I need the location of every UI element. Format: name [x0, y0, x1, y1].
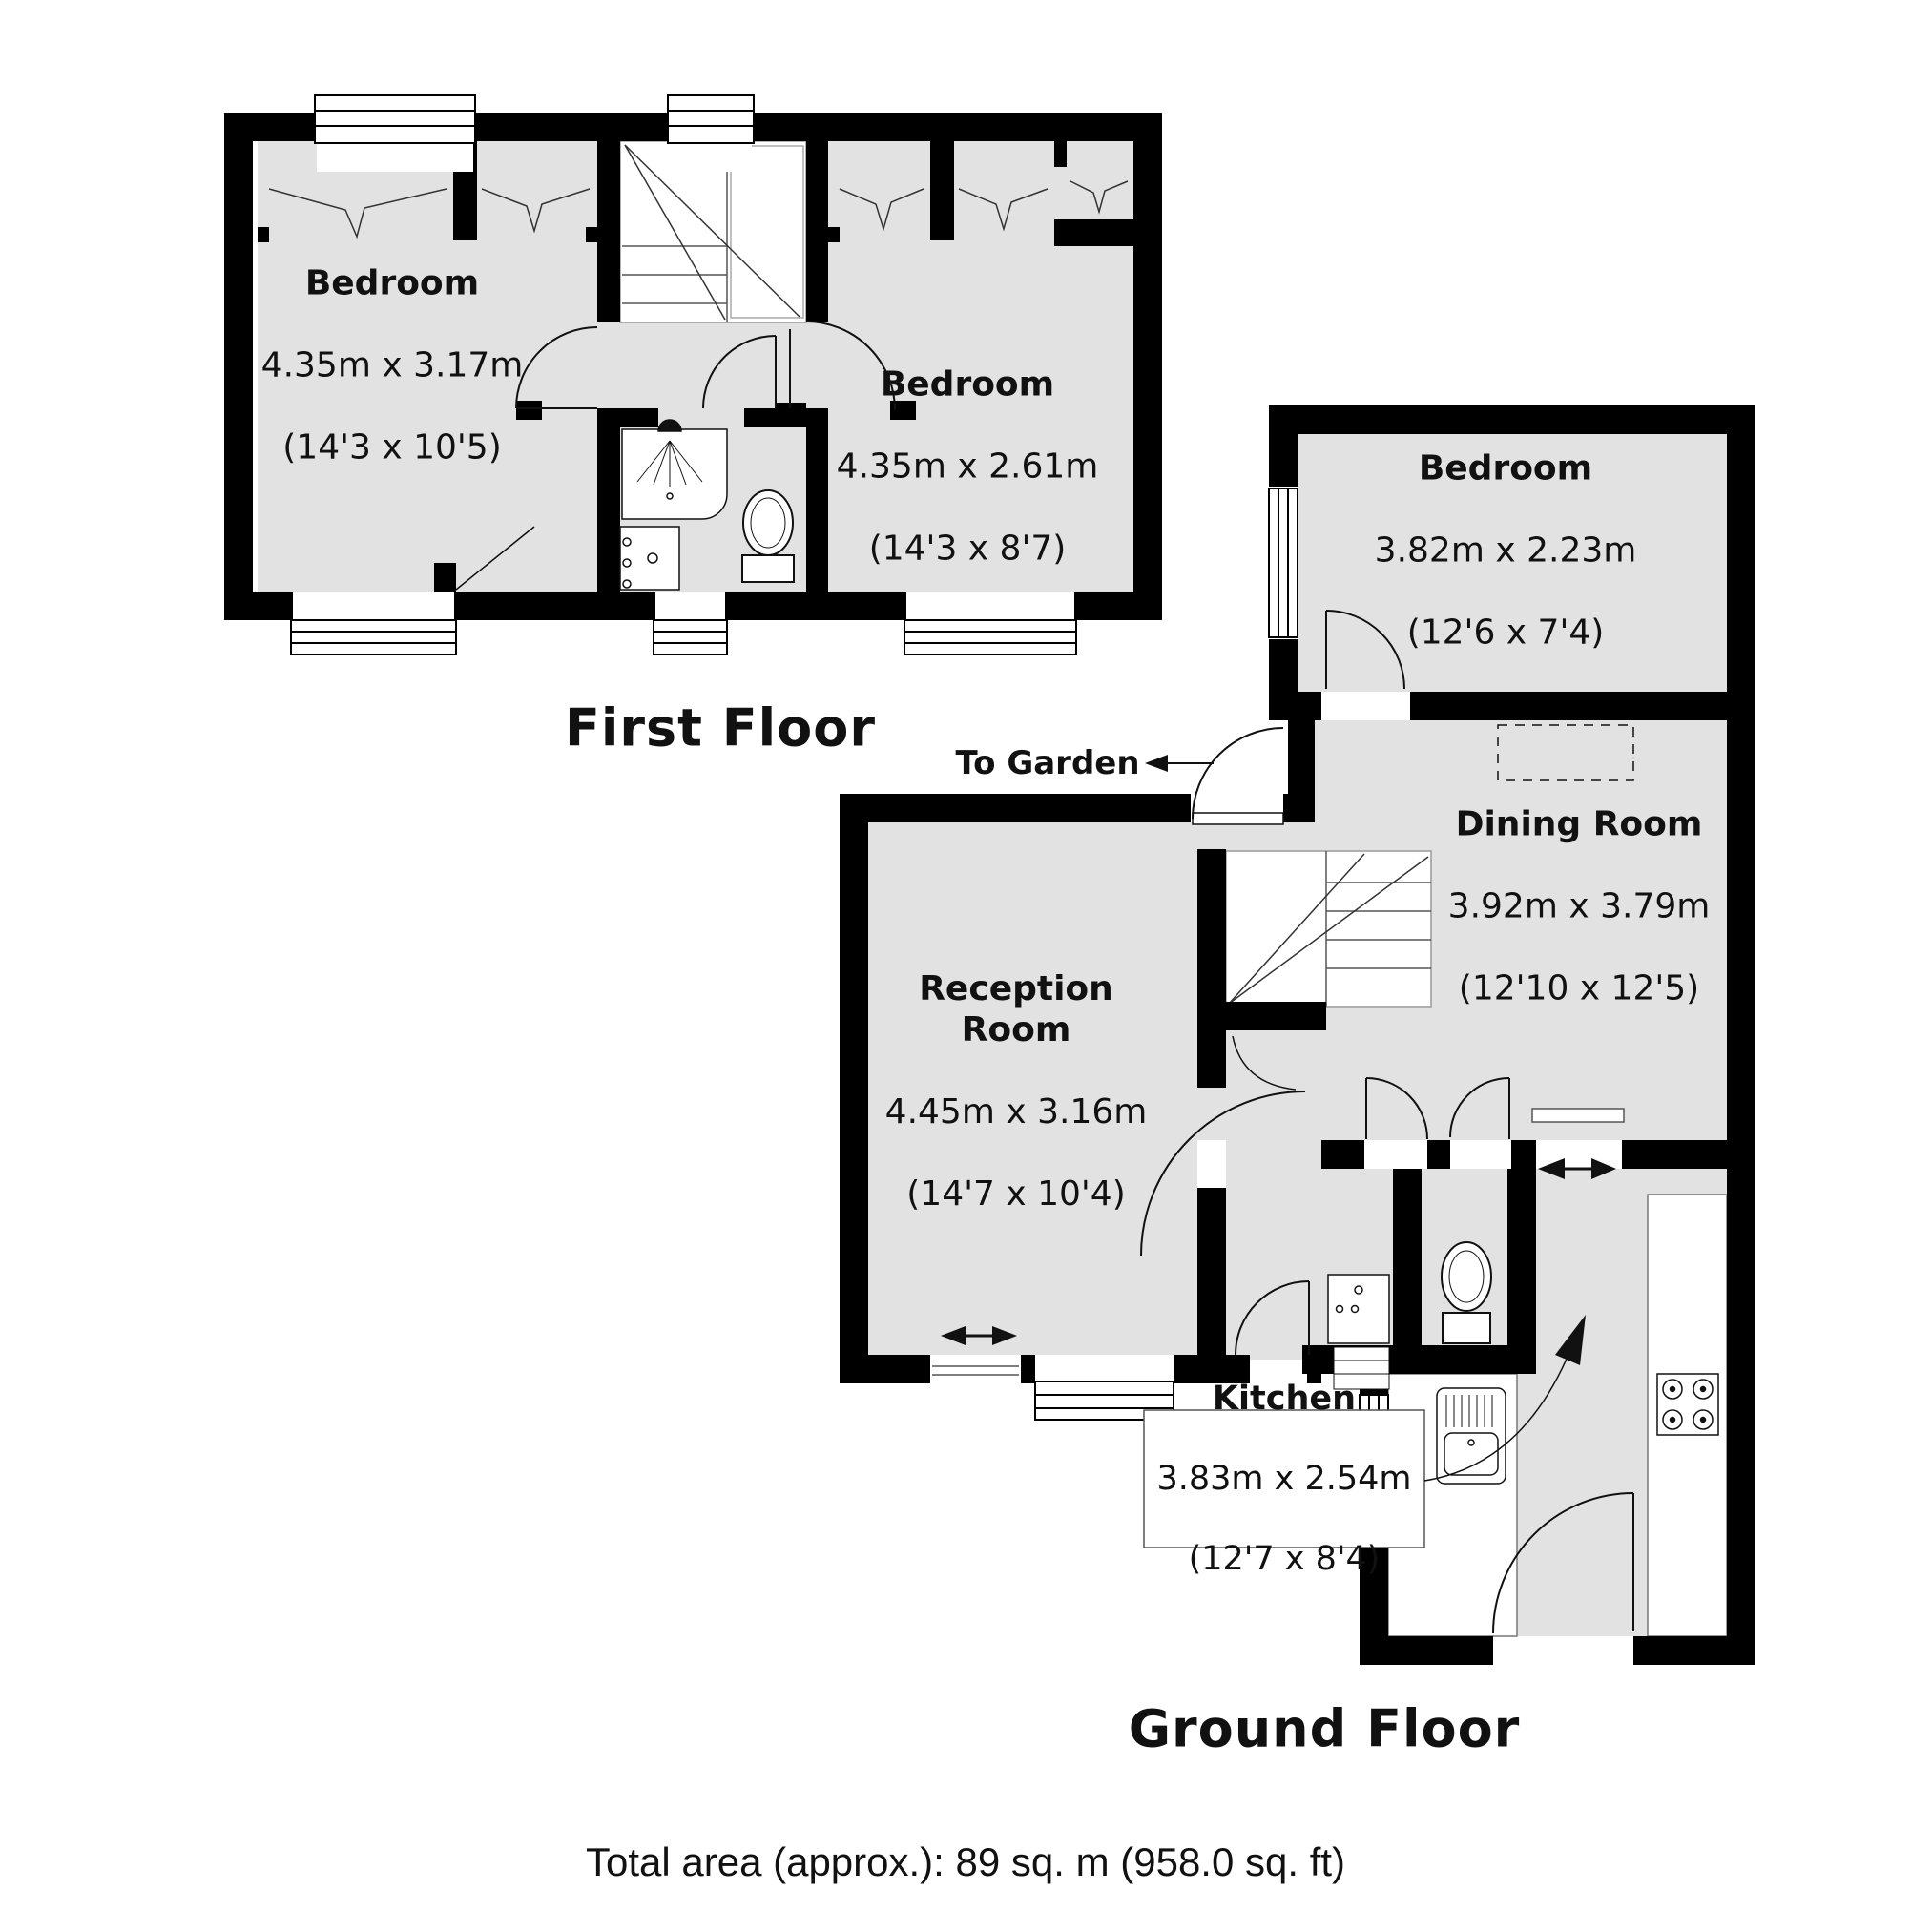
- room-size-ft: (12'6 x 7'4): [1375, 613, 1637, 654]
- toilet-icon: [742, 490, 794, 582]
- room-name: Bedroom: [837, 364, 1099, 405]
- room-name: Kitchen: [1156, 1379, 1411, 1419]
- room-name: Bedroom: [1375, 448, 1637, 489]
- vanity-icon: [620, 527, 679, 590]
- room-size-m: 3.92m x 3.79m: [1448, 886, 1711, 927]
- room-size-m: 4.35m x 2.61m: [837, 447, 1099, 488]
- room-size-ft: (14'7 x 10'4): [885, 1174, 1148, 1215]
- room-label-bedroom-gf: Bedroom 3.82m x 2.23m (12'6 x 7'4): [1375, 407, 1637, 695]
- total-area-text: Total area (approx.): 89 sq. m (958.0 sq…: [586, 1839, 1345, 1885]
- to-garden-arrow-icon: [1145, 755, 1214, 772]
- sliding-door-icon: [1532, 1109, 1624, 1179]
- toilet-icon: [1442, 1242, 1491, 1343]
- room-label-bedroom2-ff: Bedroom 4.35m x 2.61m (14'3 x 8'7): [837, 323, 1099, 611]
- room-label-kitchen: Kitchen 3.83m x 2.54m (12'7 x 8'4): [1156, 1339, 1411, 1619]
- shower-icon: [622, 420, 727, 519]
- room-size-ft: (12'7 x 8'4): [1156, 1539, 1411, 1579]
- room-size-ft: (12'10 x 12'5): [1448, 968, 1711, 1009]
- staircase-icon: [1226, 851, 1431, 1007]
- hob-icon: [1657, 1374, 1718, 1435]
- room-size-m: 4.35m x 3.17m: [261, 345, 524, 386]
- room-name: Bedroom: [261, 263, 524, 304]
- sink-icon: [1437, 1388, 1506, 1484]
- room-size-ft: (14'3 x 8'7): [837, 529, 1099, 570]
- room-label-bedroom1-ff: Bedroom 4.35m x 3.17m (14'3 x 10'5): [261, 222, 524, 509]
- ground-floor-title: Ground Floor: [1129, 1699, 1521, 1759]
- room-size-m: 3.83m x 2.54m: [1156, 1459, 1411, 1499]
- first-floor-title: First Floor: [565, 698, 876, 758]
- room-name: Reception Room: [885, 968, 1148, 1050]
- room-label-reception: Reception Room 4.45m x 3.16m (14'7 x 10'…: [885, 927, 1148, 1256]
- room-size-m: 4.45m x 3.16m: [885, 1091, 1148, 1132]
- to-garden-label: To Garden: [955, 744, 1139, 782]
- room-size-m: 3.82m x 2.23m: [1375, 530, 1637, 571]
- floorplan-page: Bedroom 4.35m x 3.17m (14'3 x 10'5) Bedr…: [0, 0, 1932, 1932]
- room-name: Dining Room: [1448, 804, 1711, 845]
- room-size-ft: (14'3 x 10'5): [261, 427, 524, 468]
- room-label-dining: Dining Room 3.92m x 3.79m (12'10 x 12'5): [1448, 763, 1711, 1050]
